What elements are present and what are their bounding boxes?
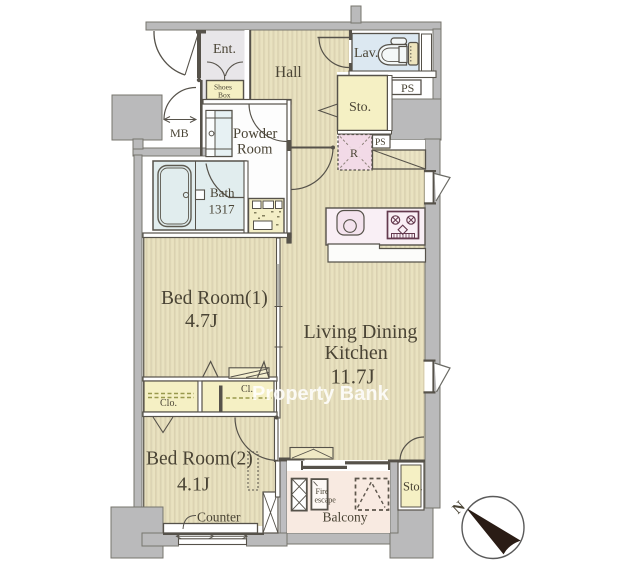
svg-text:R: R [350,146,358,160]
svg-text:Balcony: Balcony [323,510,368,525]
svg-text:Clo.: Clo. [160,398,177,409]
svg-text:Powder: Powder [233,126,277,142]
svg-text:Kitchen: Kitchen [325,342,388,364]
svg-text:escape: escape [315,496,337,505]
svg-text:Property Bank: Property Bank [252,383,390,405]
svg-text:4.1J: 4.1J [177,474,210,496]
svg-text:4.7J: 4.7J [185,310,218,332]
svg-text:Box: Box [218,91,231,100]
svg-text:Bed Room(2): Bed Room(2) [146,449,253,470]
svg-text:Counter: Counter [197,510,241,525]
svg-text:Sto.: Sto. [349,100,371,115]
svg-text:Room: Room [237,142,273,158]
svg-text:Bath: Bath [210,185,235,200]
svg-text:PS: PS [375,138,386,148]
svg-text:PS: PS [401,81,414,95]
svg-text:Lav.: Lav. [354,46,378,61]
svg-text:Sto.: Sto. [403,480,423,494]
svg-text:Hall: Hall [275,64,302,81]
svg-text:Ent.: Ent. [213,42,236,57]
svg-text:MB: MB [170,126,189,140]
svg-text:Living Dining: Living Dining [304,321,418,343]
svg-text:Bed Room(1): Bed Room(1) [161,288,268,309]
svg-text:1317: 1317 [209,202,236,217]
